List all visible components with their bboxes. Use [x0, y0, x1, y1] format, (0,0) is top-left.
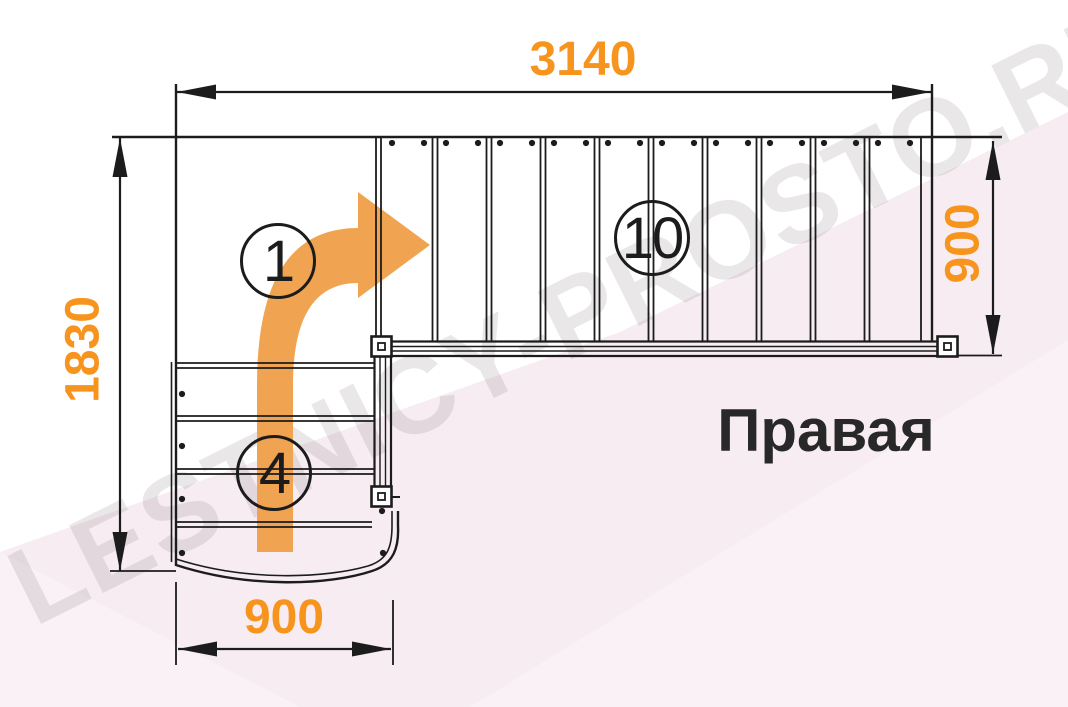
dim-left-height-label: 1830 — [56, 250, 111, 450]
stair-plan-canvas: LESTNICY-PROSTO.RU — [0, 0, 1068, 707]
dim-right-height-label: 900 — [936, 144, 991, 344]
upper-tread-screws — [389, 140, 913, 146]
handrail-top-inner — [391, 347, 937, 352]
plan-title: Правая — [626, 396, 1026, 465]
step-circle-upper-flight: 10 — [614, 200, 690, 276]
dim-left-arrow-bottom — [113, 532, 128, 571]
dim-top-width-label: 3140 — [483, 32, 683, 87]
corner-post — [372, 337, 392, 357]
step-circle-lower-number: 4 — [259, 440, 289, 507]
bottom-post — [372, 487, 392, 507]
handrail-side-edges — [375, 357, 392, 486]
step-circle-corner-number: 1 — [263, 228, 293, 295]
dim-left-arrow-top — [113, 138, 128, 177]
step-circle-corner: 1 — [240, 223, 316, 299]
handrail-side-inner — [380, 357, 386, 486]
dimension-left — [110, 138, 176, 571]
step-circle-upper-number: 10 — [622, 205, 683, 272]
dim-bottom-width-label: 900 — [184, 590, 384, 645]
dim-top-arrow-right — [892, 85, 931, 100]
stair-plan-drawing — [0, 0, 1068, 707]
handrail-top-edges — [391, 342, 937, 357]
dim-top-arrow-left — [177, 85, 216, 100]
step-circle-lower-flight: 4 — [236, 435, 312, 511]
